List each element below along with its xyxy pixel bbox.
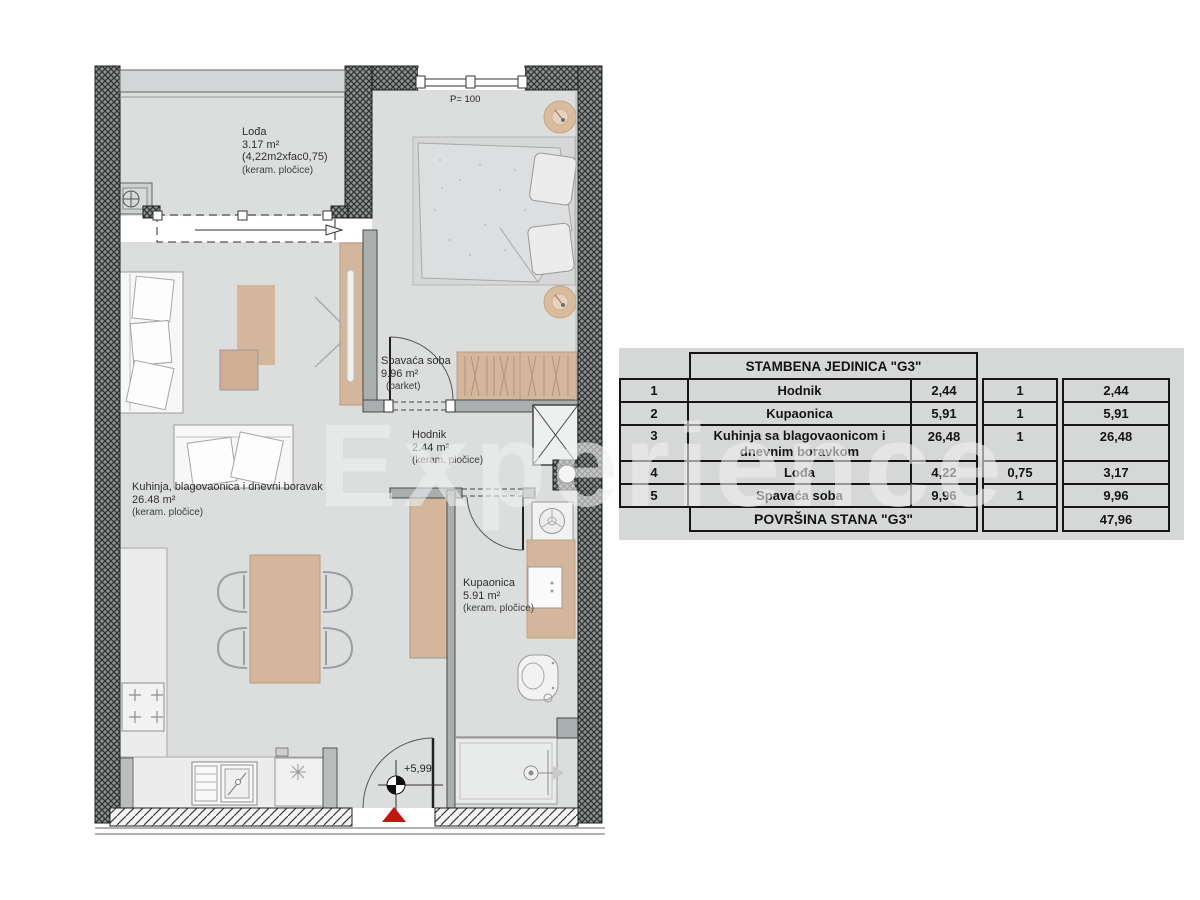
room-calc: (4,22m2xfac0,75) — [242, 151, 328, 164]
row-name: Kupaonica — [687, 401, 912, 426]
room-area: 5.91 m² — [463, 590, 534, 603]
bedroom-wardrobe — [457, 352, 577, 400]
tall-wardrobe — [340, 243, 364, 405]
bed — [413, 137, 577, 285]
row-area: 5,91 — [910, 401, 978, 426]
row-name: Lođa — [687, 460, 912, 485]
vanity-sink — [527, 540, 575, 638]
table-row: 2 Kupaonica 5,91 1 5,91 — [619, 401, 1184, 426]
sofa-horizontal — [174, 425, 293, 488]
row-name: Hodnik — [687, 378, 912, 403]
row-num: 2 — [619, 401, 689, 426]
shower — [455, 738, 564, 804]
label-kuhinja: Kuhinja, blagovaonica i dnevni boravak 2… — [132, 481, 323, 520]
stove — [122, 683, 164, 731]
unit-areas-table: STAMBENA JEDINICA "G3" 1 Hodnik 2,44 1 2… — [619, 348, 1184, 540]
row-num: 5 — [619, 483, 689, 508]
bedroom-window — [416, 68, 527, 90]
room-floor: (keram. pločice) — [242, 164, 328, 178]
room-area: 9.96 m² — [381, 368, 451, 381]
room-name: Kupaonica — [463, 577, 534, 590]
row-name-line1: Kuhinja sa blagovaonicom i — [714, 428, 886, 444]
table-row: 5 Spavaća soba 9,96 1 9,96 — [619, 483, 1184, 508]
room-floor: (keram. pločice) — [132, 506, 323, 520]
entrance-arrow — [382, 807, 406, 822]
room-floor: (parket) — [381, 380, 451, 394]
row-result: 2,44 — [1062, 378, 1170, 403]
row-factor: 1 — [982, 378, 1058, 403]
row-area: 2,44 — [910, 378, 978, 403]
label-kupaonica: Kupaonica 5.91 m² (keram. pločice) — [463, 577, 534, 616]
floor-plan — [90, 60, 610, 850]
table-row: 3 Kuhinja sa blagovaonicom i dnevnim bor… — [619, 424, 1184, 462]
row-area: 26,48 — [910, 424, 978, 462]
label-lodja: Lođa 3.17 m² (4,22m2xfac0,75) (keram. pl… — [242, 126, 328, 177]
room-name: Hodnik — [412, 429, 483, 442]
row-name: Spavaća soba — [687, 483, 912, 508]
footer-label: POVRŠINA STANA "G3" — [689, 506, 978, 532]
toilet — [518, 655, 558, 702]
row-area: 9,96 — [910, 483, 978, 508]
room-floor: (keram. pločice) — [412, 454, 483, 468]
row-result: 5,91 — [1062, 401, 1170, 426]
footer-factor-empty — [982, 506, 1058, 532]
row-num: 4 — [619, 460, 689, 485]
washing-machine — [532, 502, 573, 540]
table-footer-row: POVRŠINA STANA "G3" 47,96 — [619, 506, 1184, 532]
window-size-label: P= 100 — [450, 94, 480, 105]
row-factor: 1 — [982, 424, 1058, 462]
room-name: Lođa — [242, 126, 328, 139]
room-area: 2.44 m² — [412, 442, 483, 455]
table-header-row: STAMBENA JEDINICA "G3" — [619, 352, 1184, 380]
table-title: STAMBENA JEDINICA "G3" — [689, 352, 978, 380]
row-result: 3,17 — [1062, 460, 1170, 485]
pipe-shaft — [553, 460, 580, 490]
label-spavaca: Spavaća soba 9.96 m² (parket) — [381, 355, 451, 394]
room-floor: (keram. pločice) — [463, 602, 534, 616]
table-row: 4 Lođa 4,22 0,75 3,17 — [619, 460, 1184, 485]
row-name: Kuhinja sa blagovaonicom i dnevnim borav… — [687, 424, 912, 462]
row-num: 1 — [619, 378, 689, 403]
table-row: 1 Hodnik 2,44 1 2,44 — [619, 378, 1184, 403]
page: Lođa 3.17 m² (4,22m2xfac0,75) (keram. pl… — [0, 0, 1200, 900]
ventilation-shaft — [533, 405, 578, 465]
elevation-label: +5,99 — [404, 763, 432, 775]
row-factor: 0,75 — [982, 460, 1058, 485]
room-area: 3.17 m² — [242, 139, 328, 152]
row-area: 4,22 — [910, 460, 978, 485]
label-hodnik: Hodnik 2.44 m² (keram. pločice) — [412, 429, 483, 468]
row-num: 3 — [619, 424, 689, 462]
hall-closet — [410, 498, 447, 658]
sofa-vertical — [118, 272, 183, 413]
row-result: 9,96 — [1062, 483, 1170, 508]
kitchen-pillar — [323, 748, 337, 810]
row-result: 26,48 — [1062, 424, 1170, 462]
room-area: 26.48 m² — [132, 494, 323, 507]
dining-table — [250, 555, 320, 683]
room-name: Kuhinja, blagovaonica i dnevni boravak — [132, 481, 323, 494]
row-factor: 1 — [982, 401, 1058, 426]
kitchen-sink — [192, 762, 257, 805]
row-factor: 1 — [982, 483, 1058, 508]
room-name: Spavaća soba — [381, 355, 451, 368]
row-name-line2: dnevnim boravkom — [740, 444, 859, 460]
footer-total: 47,96 — [1062, 506, 1170, 532]
